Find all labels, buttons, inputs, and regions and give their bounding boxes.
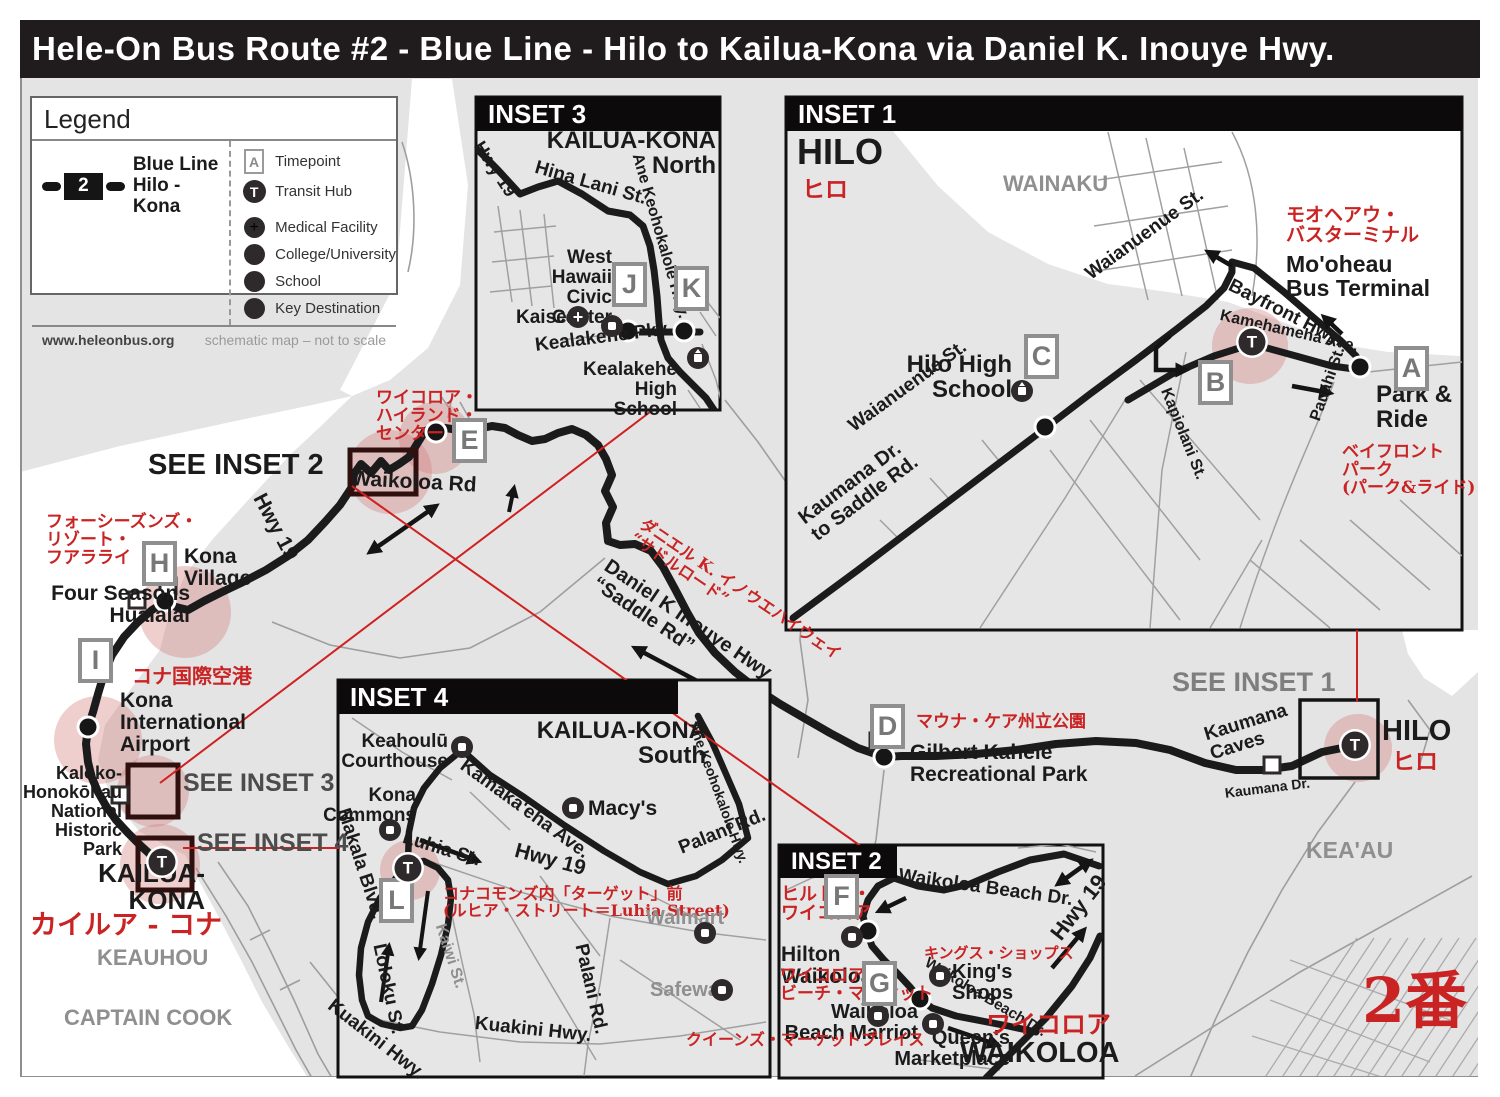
key-destination-icon bbox=[694, 922, 716, 944]
key-destination-icon bbox=[922, 1013, 944, 1035]
legend-heading: Legend bbox=[32, 98, 396, 141]
route-map-canvas: Hele-On Bus Route #2 - Blue Line - Hilo … bbox=[0, 0, 1500, 1097]
timepoint-j: J bbox=[612, 262, 647, 307]
timepoint-d: D bbox=[870, 704, 905, 749]
school-icon bbox=[241, 271, 267, 292]
route-stop-dot bbox=[1352, 359, 1369, 376]
hilo-label-main: HILO bbox=[1382, 716, 1451, 746]
timepoint-c: C bbox=[1024, 334, 1059, 379]
hilo-jp-main: ヒロ bbox=[1392, 750, 1438, 774]
timepoint-b: B bbox=[1198, 360, 1233, 405]
route-dash bbox=[42, 182, 61, 191]
kaloko-label: Kaloko- Honokōhau National Historic Park bbox=[23, 764, 122, 858]
route-stop-dot bbox=[1037, 419, 1054, 436]
timepoint-a: A bbox=[1394, 346, 1429, 391]
school-icon bbox=[687, 347, 709, 369]
route-stop-dot bbox=[876, 749, 893, 766]
waikoloa-jp: ワイコロア bbox=[986, 1012, 1111, 1038]
legend-item-label: Medical Facility bbox=[275, 219, 378, 236]
legend-item: ATimepoint bbox=[241, 149, 396, 174]
kealakehe-high-label: Kealakehe High School bbox=[583, 360, 677, 420]
legend-item: School bbox=[241, 271, 396, 292]
legend-item: TTransit Hub bbox=[241, 180, 396, 203]
legend-panel: Legend 2 Blue Line Hilo - Kona ATimepoin… bbox=[30, 96, 398, 295]
kaiser-label: Kaiser bbox=[516, 308, 574, 328]
route-stop-dot bbox=[80, 719, 97, 736]
timepoint-k: K bbox=[674, 266, 709, 311]
legend-item-label: Timepoint bbox=[275, 153, 340, 170]
route-line-symbol: 2 Blue Line Hilo - Kona bbox=[42, 155, 229, 218]
timepoint-icon: A bbox=[241, 149, 267, 174]
moheau-label: Mo'oheau Bus Terminal bbox=[1286, 252, 1430, 300]
stop-square-marker bbox=[1263, 756, 1282, 775]
key-destination-icon bbox=[379, 819, 401, 841]
queens-jp: クイーンズ・マーケットプレイス bbox=[686, 1032, 924, 1049]
timepoint-g: G bbox=[862, 961, 897, 1006]
transit-hub-icon: T bbox=[1239, 329, 1266, 356]
transit-hub-icon: T bbox=[149, 849, 176, 876]
legend-item-label: School bbox=[275, 273, 321, 290]
bayfront-park-jp: ベイフロント パーク (パーク&ライド) bbox=[1342, 444, 1475, 498]
timepoint-l: L bbox=[379, 878, 414, 923]
route-number-jp: 2番 bbox=[1362, 968, 1467, 1033]
route-dash bbox=[106, 182, 125, 191]
transit-hub-icon: T bbox=[241, 180, 267, 203]
legend-item: Key Destination bbox=[241, 298, 396, 319]
medical-facility-icon: + bbox=[567, 306, 589, 328]
transit-hub-icon: T bbox=[395, 855, 422, 882]
route-number-badge: 2 bbox=[64, 173, 102, 200]
mauna-kea-jp: マウナ・ケア州立公園 bbox=[916, 714, 1086, 732]
inset1-hilo-label: HILO bbox=[797, 133, 883, 171]
key-destination-icon bbox=[562, 797, 584, 819]
inset4-header: INSET 4 bbox=[338, 680, 678, 714]
route-stop-dot bbox=[676, 323, 693, 340]
legend-item: +Medical Facility bbox=[241, 217, 396, 238]
inset4-kailua-label: KAILUA-KONA South bbox=[537, 718, 706, 768]
inset1-header: INSET 1 bbox=[786, 97, 1462, 131]
page-title: Hele-On Bus Route #2 - Blue Line - Hilo … bbox=[20, 20, 1480, 78]
medical-icon: + bbox=[241, 217, 267, 238]
four-seasons-label: Four Seasons Hualalai bbox=[51, 583, 190, 627]
macys-label: Macy's bbox=[588, 798, 657, 820]
moheau-jp: モオヘアウ・ バスターミナル bbox=[1286, 206, 1419, 246]
waikoloa-label: WAIKOLOA bbox=[960, 1038, 1120, 1068]
legend-website: www.heleonbus.org bbox=[42, 332, 175, 348]
key-destination-icon bbox=[711, 979, 733, 1001]
wainaku-label: WAINAKU bbox=[1003, 172, 1108, 195]
see-inset-2-label: SEE INSET 2 bbox=[148, 450, 324, 480]
see-inset-1-label: SEE INSET 1 bbox=[1172, 668, 1336, 696]
legend-item-label: Transit Hub bbox=[275, 183, 352, 200]
key-destination-icon bbox=[601, 315, 623, 337]
key-destination-icon bbox=[241, 298, 267, 319]
inset1-hilo-jp: ヒロ bbox=[802, 178, 848, 202]
legend-item-label: College/University bbox=[275, 246, 396, 263]
marriott-jp: ワイコロア・ ビーチ・マリオット bbox=[780, 968, 933, 1004]
key-destination-icon bbox=[451, 736, 473, 758]
keaau-label: KEA'AU bbox=[1306, 838, 1393, 862]
timepoint-f: F bbox=[824, 874, 859, 919]
legend-scale-note: schematic map – not to scale bbox=[205, 332, 386, 348]
key-destination-icon bbox=[841, 926, 863, 948]
route-name: Blue Line Hilo - Kona bbox=[133, 155, 229, 218]
kings-shops-jp: キングス・ショップス bbox=[924, 946, 1074, 962]
legend-item-label: Key Destination bbox=[275, 300, 380, 317]
keahoulu-label: Keahoulū Courthouse bbox=[341, 732, 448, 772]
gilbert-kahele-label: Gilbert Kahele Recreational Park bbox=[910, 742, 1087, 786]
legend-item: College/University bbox=[241, 244, 396, 265]
key-destination-icon bbox=[867, 1005, 889, 1027]
captain-cook-label: CAPTAIN COOK bbox=[64, 1006, 232, 1029]
transit-hub-icon: T bbox=[1342, 732, 1369, 759]
see-inset-3-label: SEE INSET 3 bbox=[183, 770, 334, 796]
inset3-header: INSET 3 bbox=[476, 97, 720, 131]
kona-airport-label: Kona International Airport bbox=[120, 690, 246, 756]
keauhou-label: KEAUHOU bbox=[97, 946, 208, 969]
timepoint-h: H bbox=[142, 541, 177, 586]
timepoint-e: E bbox=[452, 418, 487, 463]
kailua-kona-jp: カイルア - コナ bbox=[30, 912, 222, 940]
kona-airport-jp: コナ国際空港 bbox=[132, 666, 252, 687]
college-icon bbox=[241, 244, 267, 265]
school-icon bbox=[1011, 380, 1033, 402]
key-destination-icon bbox=[929, 965, 951, 987]
timepoint-i: I bbox=[78, 638, 113, 683]
see-inset-4-label: SEE INSET 4 bbox=[197, 830, 348, 856]
kona-village-label: Kona Village bbox=[184, 546, 251, 590]
